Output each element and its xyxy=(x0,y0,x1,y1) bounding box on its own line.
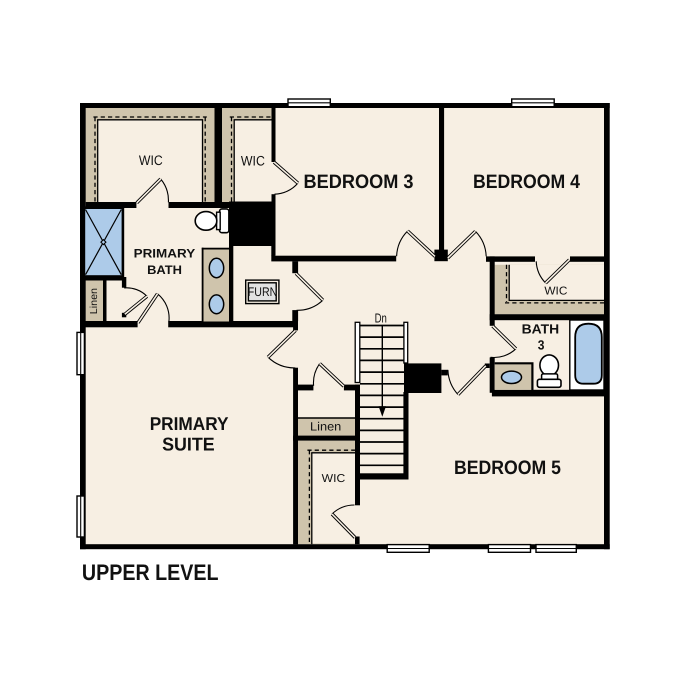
svg-text:Linen: Linen xyxy=(89,288,100,314)
svg-text:BEDROOM 4: BEDROOM 4 xyxy=(473,171,580,193)
svg-text:PRIMARY: PRIMARY xyxy=(134,246,196,260)
svg-text:3: 3 xyxy=(538,338,545,353)
svg-text:Linen: Linen xyxy=(310,419,341,433)
svg-text:BEDROOM 3: BEDROOM 3 xyxy=(304,171,414,193)
svg-text:UPPER LEVEL: UPPER LEVEL xyxy=(82,560,219,585)
svg-text:SUITE: SUITE xyxy=(162,434,215,455)
svg-text:WIC: WIC xyxy=(322,473,346,485)
svg-text:WIC: WIC xyxy=(544,285,567,297)
svg-text:WIC: WIC xyxy=(241,154,265,169)
svg-text:BATH: BATH xyxy=(147,263,182,277)
svg-text:BATH: BATH xyxy=(522,322,560,337)
svg-text:WIC: WIC xyxy=(139,153,163,168)
svg-text:BEDROOM 5: BEDROOM 5 xyxy=(454,457,561,479)
svg-text:FURN: FURN xyxy=(248,285,277,299)
svg-text:PRIMARY: PRIMARY xyxy=(150,413,229,434)
svg-text:Dn: Dn xyxy=(375,310,387,325)
